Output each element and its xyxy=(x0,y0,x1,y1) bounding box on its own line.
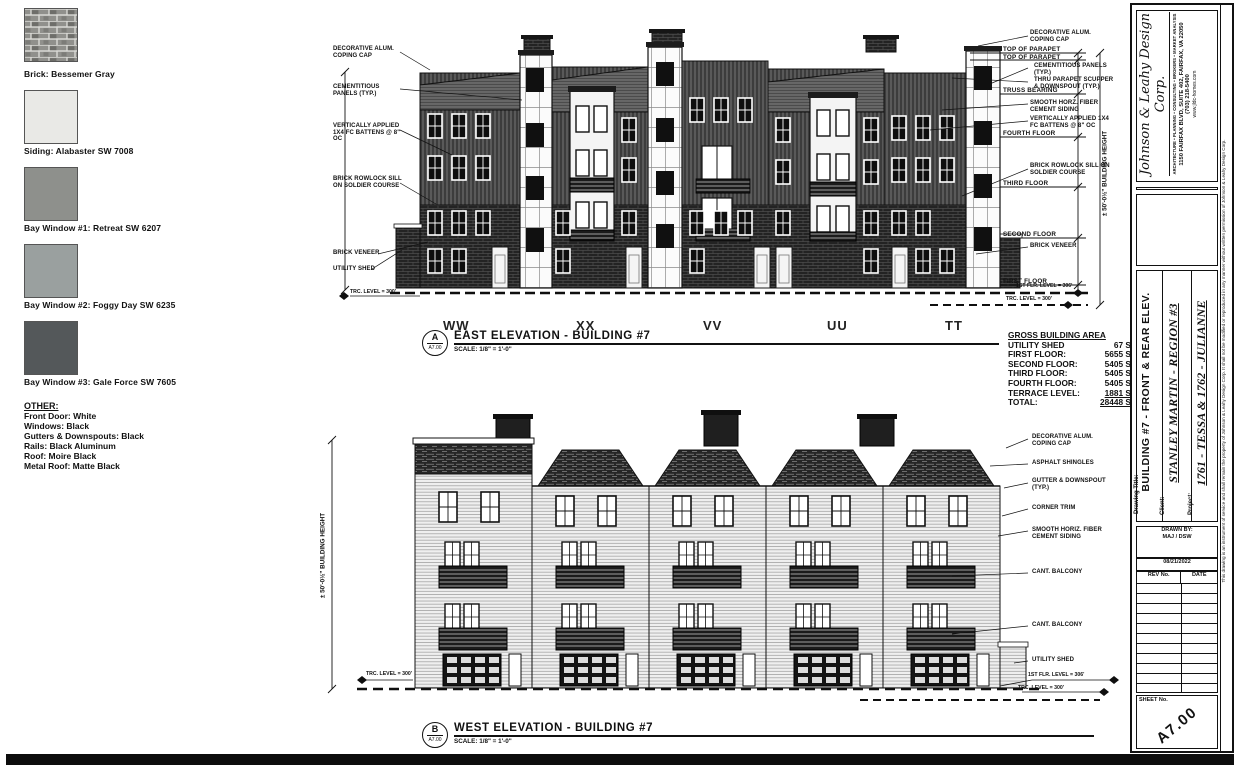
callout: CEMENTITIOUS PANELS (TYP.) xyxy=(1034,63,1114,76)
other-item: Front Door: White xyxy=(24,411,229,421)
callout: SMOOTH HORZ. FIBER CEMENT SIDING xyxy=(1030,100,1110,113)
project-col: Project: 1761 - TESSA & 1762 - JULIANNE xyxy=(1188,271,1216,515)
swatch-label: Bay Window #3: Gale Force SW 7605 xyxy=(24,377,229,387)
firm-phone: (703) 218-5400 xyxy=(1185,12,1191,176)
legend-item-bay3: Bay Window #3: Gale Force SW 7605 xyxy=(24,321,229,387)
coping-cap xyxy=(413,438,534,444)
date-value: 08/21/2022 xyxy=(1137,559,1217,566)
firm-identity: Johnson & Leahy Design Corp. ARCHITECTUR… xyxy=(1138,12,1212,176)
floor-label: TOP OF PARAPET xyxy=(1003,46,1060,53)
rev-row xyxy=(1137,613,1217,623)
rev-row xyxy=(1137,653,1217,663)
roof xyxy=(538,450,643,486)
callout: DECORATIVE ALUM. COPING CAP xyxy=(1032,434,1112,447)
client-value: STANLEY MARTIN - REGION #3 xyxy=(1166,271,1181,515)
detail-sheet-ref: A7.00 xyxy=(428,736,441,745)
bay-window xyxy=(568,86,616,241)
callout: DECORATIVE ALUM. COPING CAP xyxy=(333,46,403,59)
rev-row xyxy=(1137,633,1217,643)
dimension-line xyxy=(328,436,336,693)
divider xyxy=(1136,187,1218,190)
building-height-dim: ± 50'-0½" BUILDING HEIGHT xyxy=(320,508,327,604)
view-scale: SCALE: 1/8" = 1'-0" xyxy=(454,346,999,353)
legend-item-bay2: Bay Window #2: Foggy Day SW 6235 xyxy=(24,244,229,310)
other-item: Metal Roof: Matte Black xyxy=(24,461,229,471)
other-item: Roof: Moire Black xyxy=(24,451,229,461)
panel-tower xyxy=(646,42,684,288)
drawn-by-label: DRAWN BY: xyxy=(1137,527,1217,534)
west-elevation-title: B A7.00 WEST ELEVATION - BUILDING #7 SCA… xyxy=(422,722,1094,748)
sheet-edge-bar xyxy=(6,754,1234,765)
revision-table: REV No. DATE xyxy=(1136,571,1218,693)
datum-text: TRC. LEVEL = 300' xyxy=(350,289,396,295)
bay2-swatch xyxy=(24,244,78,298)
callout: CANT. BALCONY xyxy=(1032,569,1112,576)
rev-col-header: REV No. xyxy=(1137,572,1181,583)
other-item: Windows: Black xyxy=(24,421,229,431)
row-label: TOTAL: xyxy=(1008,398,1038,408)
drawn-by-box: DRAWN BY: MAJ / DSW xyxy=(1136,526,1218,558)
drawing-title-col: Drawing Title: BUILDING #7 - FRONT & REA… xyxy=(1134,270,1160,514)
callout: BRICK ROWLOCK SILL ON SOLDIER COURSE xyxy=(333,176,403,189)
swatch-label: Bay Window #1: Retreat SW 6207 xyxy=(24,223,229,233)
other-heading: OTHER: xyxy=(24,401,229,411)
firm-name: Johnson & Leahy Design Corp. xyxy=(1138,12,1170,176)
drawing-title-value: BUILDING #7 - FRONT & REAR ELEV. xyxy=(1140,270,1152,514)
siding-swatch xyxy=(24,90,78,144)
west-chimneys xyxy=(493,410,897,446)
sheet-number-box: SHEET No. A7.00 xyxy=(1136,695,1218,749)
drawn-by-value: MAJ / DSW xyxy=(1137,534,1217,541)
building-height-dim: ± 50'-0½" BUILDING HEIGHT xyxy=(1102,127,1109,221)
other-item: Rails: Black Aluminum xyxy=(24,441,229,451)
bay-window xyxy=(808,92,858,241)
drawing-sheet: Brick: Bessemer Gray Siding: Alabaster S… xyxy=(0,0,1239,768)
detail-marker-a: A A7.00 xyxy=(422,330,448,356)
swatch-label: Brick: Bessemer Gray xyxy=(24,69,229,79)
callout: VERTICALLY APPLIED 1X4 FC BATTENS @ 8" O… xyxy=(333,123,405,143)
callout: ASPHALT SHINGLES xyxy=(1032,460,1112,467)
callout: BRICK ROWLOCK SILL ON SOLDIER COURSE xyxy=(1030,163,1110,176)
callout: VERTICALLY APPLIED 1X4 FC BATTENS @ 8" O… xyxy=(1030,116,1110,129)
floor-label: THIRD FLOOR xyxy=(1003,180,1048,187)
rev-row xyxy=(1137,593,1217,603)
shingle-band xyxy=(415,444,532,474)
east-chimneys xyxy=(521,29,899,54)
firm-website: www.jldc-homes.com xyxy=(1192,12,1198,176)
material-legend: Brick: Bessemer Gray Siding: Alabaster S… xyxy=(24,8,229,471)
legend-item-bay1: Bay Window #1: Retreat SW 6207 xyxy=(24,167,229,233)
other-item: Gutters & Downspouts: Black xyxy=(24,431,229,441)
rev-row xyxy=(1137,683,1217,693)
firm-tagline: ARCHITECTURE • PLANNING • CONSULTING • B… xyxy=(1172,12,1177,176)
datum-text: TRC. LEVEL = 300' xyxy=(1018,685,1064,691)
date-box: 08/21/2022 xyxy=(1136,558,1218,571)
rev-row xyxy=(1137,673,1217,683)
detail-sheet-ref: A7.00 xyxy=(428,344,441,353)
empty-box xyxy=(1136,194,1218,266)
callout: BRICK VENEER xyxy=(333,250,403,257)
west-elevation-drawing xyxy=(300,408,1150,708)
roof xyxy=(655,450,760,486)
roof xyxy=(889,450,994,486)
panel-tower xyxy=(518,50,554,288)
disclaimer-text: This drawing is an instrument of service… xyxy=(1221,136,1231,586)
datum-text: 1ST FLR. LEVEL = 306' xyxy=(1028,672,1084,678)
datum-text: 1ST FLR. LEVEL = 306' xyxy=(1016,283,1072,289)
brick-swatch xyxy=(24,8,78,62)
callout: CANT. BALCONY xyxy=(1032,622,1112,629)
callout: SMOOTH HORIZ. FIBER CEMENT SIDING xyxy=(1032,527,1112,540)
rev-row xyxy=(1137,583,1217,593)
floor-label: SECOND FLOOR xyxy=(1003,231,1056,238)
rev-row xyxy=(1137,623,1217,633)
east-elevation-title: A A7.00 EAST ELEVATION - BUILDING #7 SCA… xyxy=(422,330,999,356)
callout: UTILITY SHED xyxy=(333,266,403,273)
view-title: WEST ELEVATION - BUILDING #7 xyxy=(454,722,1094,737)
roof xyxy=(772,450,877,486)
view-scale: SCALE: 1/8" = 1'-0" xyxy=(454,738,1094,745)
gross-building-area-table: GROSS BUILDING AREA UTILITY SHED67 SF FI… xyxy=(1008,331,1136,408)
rev-row xyxy=(1137,663,1217,673)
floor-label: TRUSS BEARING xyxy=(1003,87,1058,94)
floor-label: FOURTH FLOOR xyxy=(1003,130,1055,137)
balcony-railing xyxy=(696,179,750,193)
floor-label: TOP OF PARAPET xyxy=(1003,54,1060,61)
datum-text: TRC. LEVEL = 300' xyxy=(366,671,412,677)
detail-letter: B xyxy=(427,723,444,736)
table-row: TOTAL:28448 SF xyxy=(1008,398,1136,408)
callout: CORNER TRIM xyxy=(1032,505,1112,512)
callout: UTILITY SHED xyxy=(1032,657,1112,664)
date-col-header: DATE xyxy=(1181,572,1217,583)
callout: DECORATIVE ALUM. COPING CAP xyxy=(1030,30,1110,43)
bay1-swatch xyxy=(24,167,78,221)
rev-row xyxy=(1137,643,1217,653)
legend-item-siding: Siding: Alabaster SW 7008 xyxy=(24,90,229,156)
rev-row xyxy=(1137,603,1217,613)
swatch-label: Siding: Alabaster SW 7008 xyxy=(24,146,229,156)
callout: GUTTER & DOWNSPOUT (TYP.) xyxy=(1032,478,1112,491)
callout: BRICK VENEER xyxy=(1030,243,1110,250)
panel-tower xyxy=(964,46,1002,288)
swatch-label: Bay Window #2: Foggy Day SW 6235 xyxy=(24,300,229,310)
client-col: Client: STANLEY MARTIN - REGION #3 xyxy=(1160,271,1188,515)
bay3-swatch xyxy=(24,321,78,375)
detail-letter: A xyxy=(427,331,444,344)
legend-item-brick: Brick: Bessemer Gray xyxy=(24,8,229,79)
project-value: 1761 - TESSA & 1762 - JULIANNE xyxy=(1194,271,1209,515)
callout: CEMENTITIOUS PANELS (TYP.) xyxy=(333,84,403,97)
datum-text: TRC. LEVEL = 300' xyxy=(1006,296,1052,302)
view-title: EAST ELEVATION - BUILDING #7 xyxy=(454,330,999,345)
detail-marker-b: B A7.00 xyxy=(422,722,448,748)
